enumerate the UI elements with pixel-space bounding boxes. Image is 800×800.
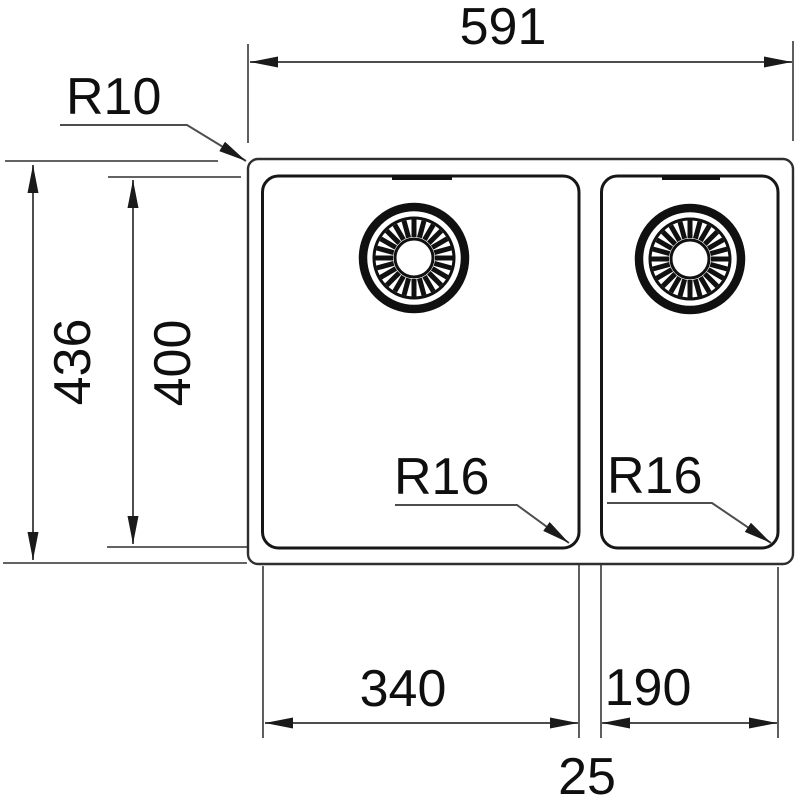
technical-drawing-svg: 591 436 400 R10 R16 R16 340 190 25	[0, 0, 800, 800]
label-left-bowl-radius: R16	[394, 448, 489, 506]
label-right-bowl-width: 190	[605, 659, 692, 717]
leader-r10	[60, 125, 246, 161]
label-center-gap: 25	[558, 748, 616, 800]
label-outer-corner-radius: R10	[66, 68, 161, 126]
label-right-bowl-radius: R16	[607, 447, 702, 505]
sink-dimension-drawing: 591 436 400 R10 R16 R16 340 190 25	[0, 0, 800, 800]
label-left-bowl-width: 340	[360, 660, 447, 718]
left-bowl-overflow-mark	[392, 175, 452, 181]
label-bowl-depth: 400	[144, 320, 202, 407]
label-overall-width: 591	[460, 0, 547, 56]
label-overall-height: 436	[44, 319, 102, 406]
right-bowl-overflow-mark	[662, 175, 720, 181]
